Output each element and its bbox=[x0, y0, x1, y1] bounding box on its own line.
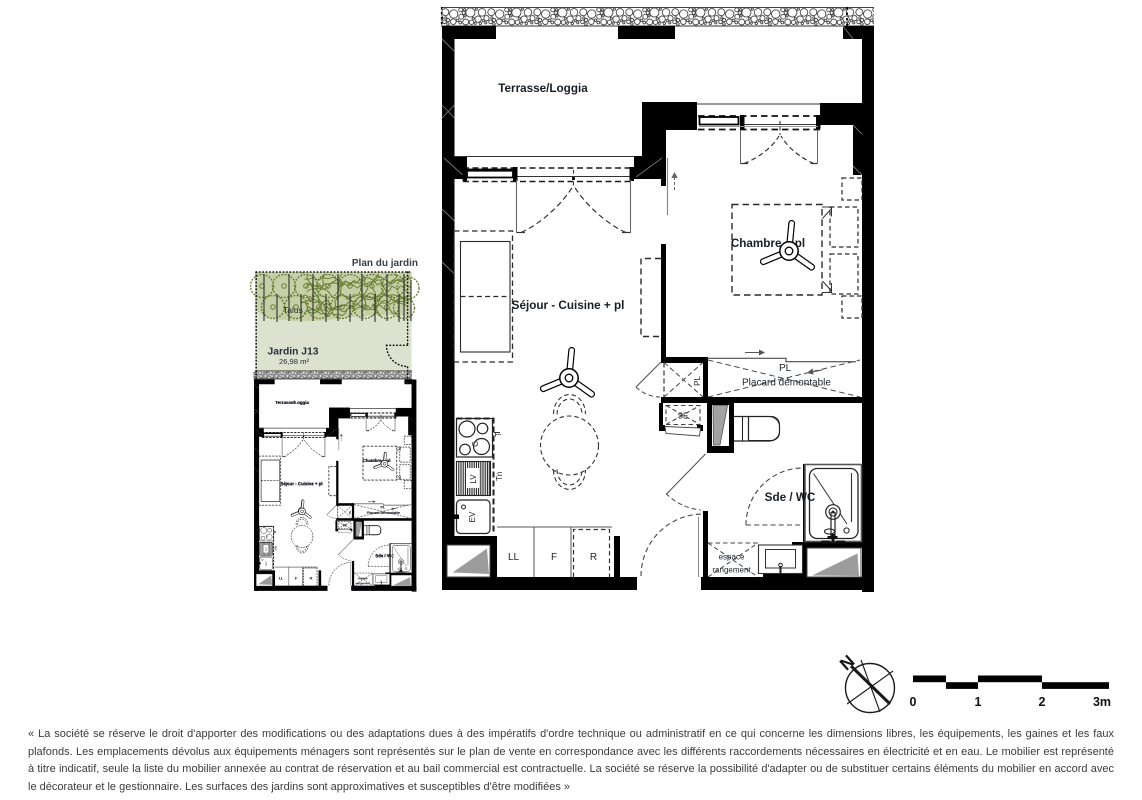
svg-text:3m: 3m bbox=[1093, 695, 1111, 709]
svg-text:0: 0 bbox=[910, 695, 917, 709]
svg-text:2: 2 bbox=[1039, 695, 1046, 709]
svg-text:Talus: Talus bbox=[283, 305, 303, 315]
svg-text:26,98 m²: 26,98 m² bbox=[279, 357, 309, 366]
svg-text:1: 1 bbox=[975, 695, 982, 709]
svg-text:Plan du jardin: Plan du jardin bbox=[352, 258, 418, 269]
svg-text:Jardin J13: Jardin J13 bbox=[268, 347, 319, 358]
